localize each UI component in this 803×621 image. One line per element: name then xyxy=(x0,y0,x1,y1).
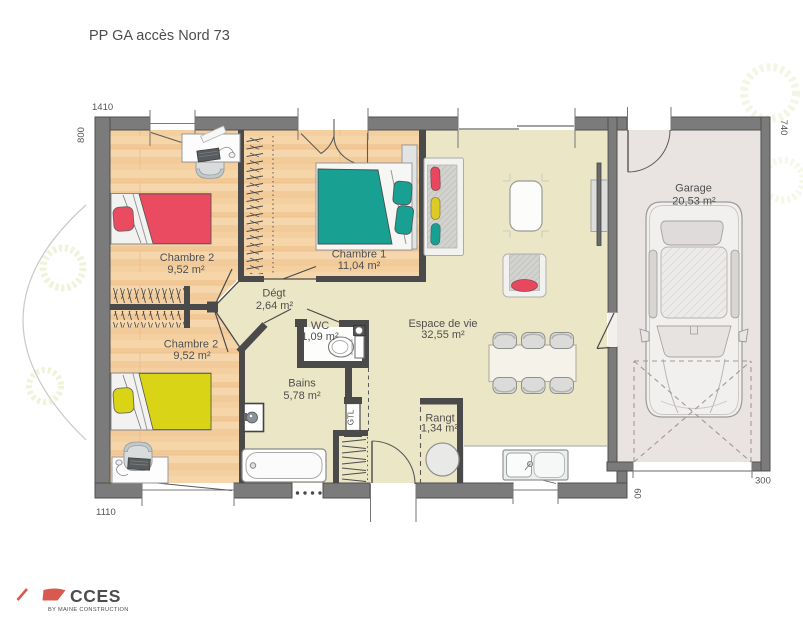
svg-text:11,04 m²: 11,04 m² xyxy=(338,260,381,272)
svg-text:PP GA accès Nord 73: PP GA accès Nord 73 xyxy=(89,28,230,44)
svg-text:Chambre 1: Chambre 1 xyxy=(332,249,386,261)
svg-text:Bains: Bains xyxy=(288,378,316,390)
svg-text:Chambre 2: Chambre 2 xyxy=(164,339,218,351)
svg-text:1110: 1110 xyxy=(96,507,116,518)
svg-text:9,52 m²: 9,52 m² xyxy=(173,350,211,362)
svg-text:Chambre 2: Chambre 2 xyxy=(160,252,214,264)
svg-text:300: 300 xyxy=(755,476,771,487)
svg-text:2,64 m²: 2,64 m² xyxy=(256,300,294,312)
svg-text:CCES: CCES xyxy=(70,586,121,606)
svg-text:BY MAINE CONSTRUCTION: BY MAINE CONSTRUCTION xyxy=(48,607,129,613)
svg-text:Garage: Garage xyxy=(675,183,712,195)
svg-text:1,09 m²: 1,09 m² xyxy=(301,331,339,343)
svg-text:Dégt: Dégt xyxy=(262,288,285,300)
svg-text:GTL: GTL xyxy=(347,409,356,425)
svg-text:32,55 m²: 32,55 m² xyxy=(421,329,465,341)
svg-text:20,53 m²: 20,53 m² xyxy=(672,196,716,208)
svg-text:740: 740 xyxy=(778,120,789,136)
svg-text:800: 800 xyxy=(76,127,87,143)
svg-text:5,78 m²: 5,78 m² xyxy=(283,390,321,402)
svg-text:9,52 m²: 9,52 m² xyxy=(167,264,205,276)
svg-text:60: 60 xyxy=(632,488,643,499)
svg-text:1,34 m²: 1,34 m² xyxy=(421,423,459,435)
svg-text:1410: 1410 xyxy=(92,102,113,113)
